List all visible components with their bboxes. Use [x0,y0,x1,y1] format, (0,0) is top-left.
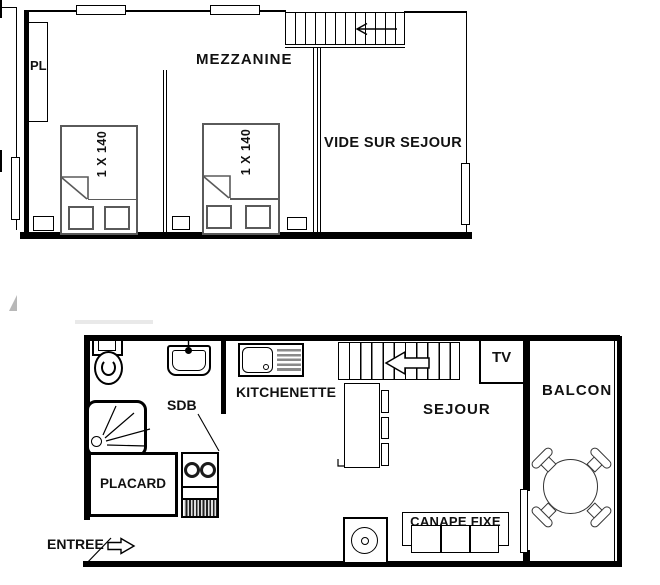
window [76,5,126,15]
shower-drain [91,436,102,447]
kitchen-sink-drain [263,364,269,370]
closet-placard-label: PLACARD [88,476,178,491]
sofa-seat-divider [440,526,442,552]
window [210,5,260,15]
staircase-upper [285,12,405,45]
toilet-tank-inner [98,341,116,351]
kitchen-sink-basin [242,347,273,373]
bathroom-label: SDB [167,397,197,413]
void-label: VIDE SUR SEJOUR [324,135,462,151]
tv-wall [479,382,525,384]
counter-shelf [381,390,389,413]
railing-line [320,48,321,233]
partition-wall [163,70,164,233]
wall-balcony-left [523,335,530,491]
kitchen-drainer [277,349,301,372]
mezzanine-label: MEZZANINE [196,51,293,68]
living-label: SEJOUR [423,401,491,418]
bathroom-leader-line [198,414,219,451]
wall-balcony-right [617,336,622,567]
bed-sheet-line [230,198,280,200]
toilet-bowl-inner [101,359,116,376]
nightstand [287,217,307,230]
outer-wall-tick [0,0,2,18]
window [11,157,20,220]
balcony-label: BALCON [542,382,612,399]
counter-shelf [381,443,389,466]
nightstand [33,216,54,231]
sofa-seats [411,525,499,553]
wall-bathroom-kitchen [221,335,226,414]
railing-line [313,48,314,233]
washbasin-tap [185,347,192,354]
kitchenette-label: KITCHENETTE [236,384,336,400]
counter [344,383,380,468]
nightstand [172,216,190,230]
bed-sheet-line [88,199,138,201]
shower [86,400,147,457]
stove-burner [200,462,216,478]
staircase-lower [338,342,460,380]
pedestal-table-dot [361,537,369,545]
stove-divider [183,486,217,488]
bed-size-label: 1 X 140 [95,126,109,182]
wall-top [84,335,620,341]
bay-window [520,489,528,553]
pillow [206,205,232,229]
partition-wall [166,70,167,233]
tv-label: TV [492,349,511,366]
tv-wall [479,341,481,383]
pillow [104,206,130,230]
bed-size-label: 1 X 140 [239,124,253,180]
entrance-label: ENTREE [47,536,104,552]
sofa-seat-divider [469,526,471,552]
stove-vent-hatch [184,500,217,516]
stove-burner [184,462,200,478]
outer-wall-tick [0,150,2,172]
counter-shelf [381,417,389,439]
scan-artifact [9,295,17,311]
pillow [245,205,271,229]
wall-balcony-right [614,338,616,566]
closet-pl-label: PL [30,58,47,73]
railing-line [317,48,318,233]
wall-top [404,11,467,13]
entrance-arrow [108,539,134,554]
scan-artifact [75,320,153,324]
window [461,163,470,225]
staircase-landing-line [285,47,405,48]
outer-wall-line [0,7,17,8]
pillow [68,206,94,230]
apartment-floor-plan: PL 1 X 140 1 X 140 MEZZANINE VIDE SUR SE… [0,0,660,585]
